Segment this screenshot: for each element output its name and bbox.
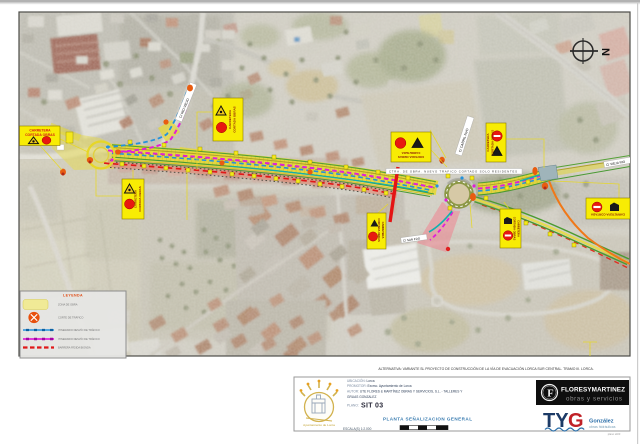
svg-text:FLORESYMARTINEZ: FLORESYMARTINEZ (561, 387, 625, 394)
svg-text:N: N (599, 48, 611, 56)
svg-text:CARRETERA: CARRETERA (517, 220, 521, 237)
svg-text:CARRETERA: CARRETERA (401, 151, 421, 155)
svg-text:CARRETERA: CARRETERA (486, 133, 490, 152)
svg-text:PLANO:: PLANO: (347, 404, 359, 408)
svg-text:F: F (547, 389, 553, 400)
svg-text:CARRETERA: CARRETERA (228, 109, 232, 129)
svg-text:BARRERA RÍGIDA BIONDA: BARRERA RÍGIDA BIONDA (58, 346, 91, 350)
svg-text:CARRETERA: CARRETERA (134, 189, 138, 208)
svg-text:ESCALA(S) 1:2.000: ESCALA(S) 1:2.000 (343, 427, 372, 431)
svg-text:obras y servicios: obras y servicios (566, 396, 622, 403)
svg-text:obras hidráulicas: obras hidráulicas (589, 425, 616, 429)
svg-text:PLANTA SEÑALIZACION GENERAL: PLANTA SEÑALIZACION GENERAL (383, 416, 472, 422)
svg-text:CTRA. DE OBRA. NUEVO TRAFICO C: CTRA. DE OBRA. NUEVO TRAFICO CORTADO SOL… (389, 170, 517, 174)
svg-text:CARRETERA: CARRETERA (381, 222, 385, 239)
svg-text:PROMOTOR: Excmo. Ayuntamiento: PROMOTOR: Excmo. Ayuntamiento de Lorca (347, 384, 412, 388)
svg-text:CORTADA OBRAS: CORTADA OBRAS (490, 130, 494, 155)
svg-text:LEYENDA: LEYENDA (63, 294, 83, 298)
svg-text:ALTERNATIVA: VARIANTE SL PROYE: ALTERNATIVA: VARIANTE SL PROYECTO DE CON… (378, 366, 593, 371)
svg-text:CORTADA OBRAS: CORTADA OBRAS (377, 218, 381, 242)
svg-text:CORTADA OBRAS: CORTADA OBRAS (138, 186, 142, 211)
svg-text:CARRETERA CORTADA: CARRETERA CORTADA (590, 213, 625, 217)
svg-text:ITINERARIO DESVÍO DE TRÁFICO: ITINERARIO DESVÍO DE TRÁFICO (58, 337, 100, 341)
svg-text:CORTADA OBRAS: CORTADA OBRAS (398, 155, 424, 159)
svg-text:UBICACIÓN: Lorca: UBICACIÓN: Lorca (347, 378, 375, 383)
svg-text:ITINERARIO DESVÍO DE TRÁFICO: ITINERARIO DESVÍO DE TRÁFICO (58, 328, 100, 332)
svg-text:CORTADA OBRAS: CORTADA OBRAS (25, 133, 55, 137)
svg-text:Ayuntamiento de Lorca: Ayuntamiento de Lorca (303, 423, 335, 427)
svg-text:SIT 03: SIT 03 (361, 403, 383, 410)
svg-text:CORTE DE TRÁFICO: CORTE DE TRÁFICO (58, 316, 83, 320)
svg-text:plano sit03: plano sit03 (608, 432, 621, 436)
svg-text:GRUAS GONZALEZ: GRUAS GONZALEZ (347, 395, 376, 399)
svg-text:CORTADA OBRAS: CORTADA OBRAS (513, 217, 517, 241)
svg-text:ZONA DE OBRA: ZONA DE OBRA (58, 303, 78, 307)
svg-text:AUTOR: UTE FLORES & MARTÍNEZ: AUTOR: UTE FLORES & MARTÍNEZ OBRAS Y SER… (347, 390, 463, 394)
svg-text:G: G (568, 410, 584, 432)
svg-text:González: González (589, 419, 614, 425)
svg-text:CORTADA OBRAS: CORTADA OBRAS (233, 106, 237, 132)
